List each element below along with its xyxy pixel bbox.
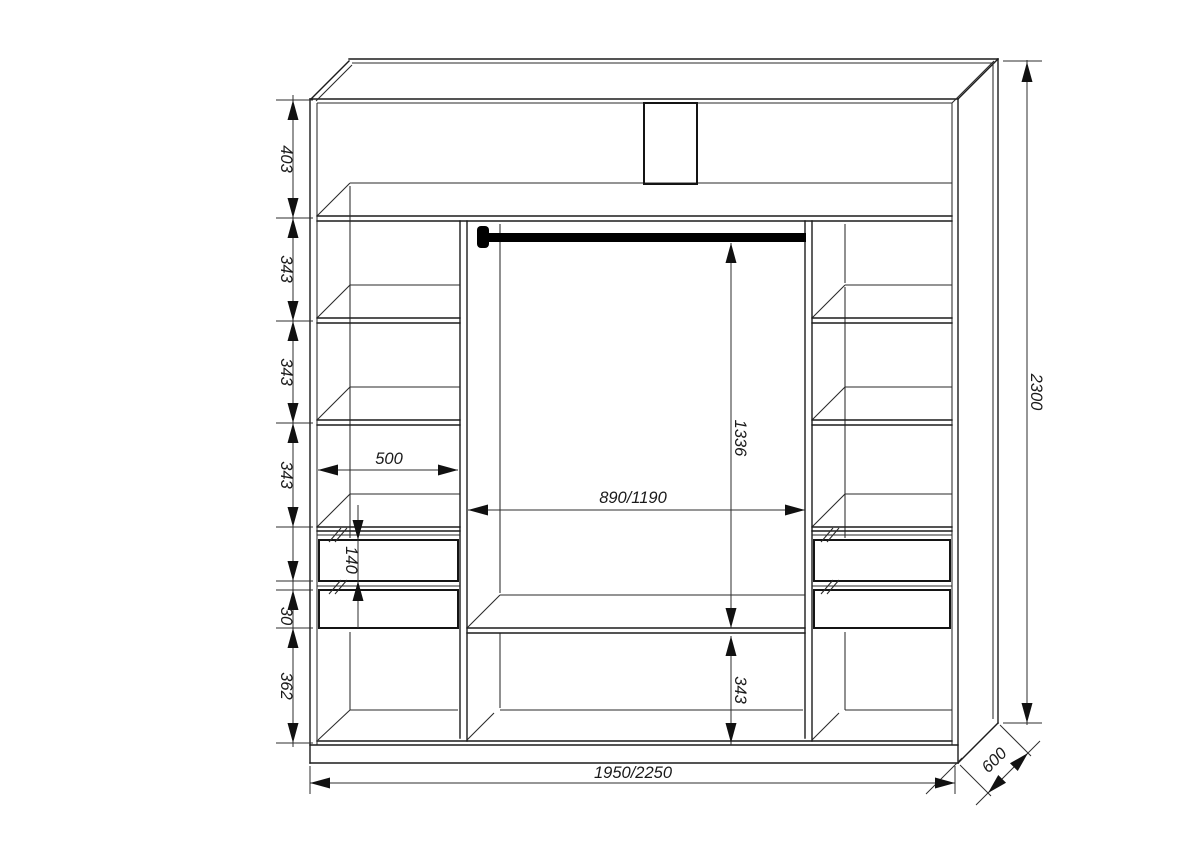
dimension-arrow <box>288 218 299 238</box>
left-drawers <box>317 528 460 628</box>
dim-label-overall-height: 2300 <box>1027 373 1045 412</box>
dim-label-shelf-1: 343 <box>277 255 295 283</box>
carcass-outline <box>310 59 998 763</box>
dimension-arrow <box>288 723 299 743</box>
left-column-shelves <box>317 285 460 531</box>
dim-label-left-width: 500 <box>375 450 403 468</box>
dimension-arrow <box>726 243 737 263</box>
dimension-arrow <box>288 301 299 321</box>
rod-bar <box>486 233 806 242</box>
top-divider-panel <box>644 103 697 184</box>
hanging-rod <box>477 226 806 248</box>
dimension-arrow <box>726 723 737 743</box>
dim-label-top-section: 403 <box>277 145 295 173</box>
dim-label-shelf-2: 343 <box>277 358 295 386</box>
dimension-arrow <box>353 520 364 540</box>
dim-label-overall-width: 1950/2250 <box>594 764 673 782</box>
dimension-arrow <box>785 505 805 516</box>
dimension-arrow <box>288 628 299 648</box>
dimension-arrow <box>310 778 330 789</box>
right-column-shelves <box>812 285 952 531</box>
left-drawer-2 <box>319 590 458 628</box>
dimension-arrow <box>288 561 299 581</box>
drawer-slide-hatch-marks <box>821 528 839 594</box>
dimension-arrow <box>726 608 737 628</box>
dim-label-center-width: 890/1190 <box>599 489 667 507</box>
dimension-arrow <box>288 403 299 423</box>
dimension-arrow <box>1022 62 1033 82</box>
dimension-arrow <box>1022 703 1033 723</box>
dim-label-rod-to-shelf: 1336 <box>731 420 749 458</box>
cabinet-structure <box>310 59 998 763</box>
right-drawer-1 <box>814 540 950 581</box>
dimension-arrow <box>318 465 338 476</box>
dimension-arrow <box>288 198 299 218</box>
dim-label-drawer-height: 140 <box>342 546 360 574</box>
dimension-arrow <box>935 778 955 789</box>
right-drawer-2 <box>814 590 950 628</box>
dimension-arrow <box>726 636 737 656</box>
dim-label-drawer-gap: 30 <box>277 607 295 626</box>
dimension-arrow <box>438 465 458 476</box>
top-shelf <box>317 183 952 221</box>
left-partition <box>460 221 500 741</box>
dimension-arrow <box>288 423 299 443</box>
drawing-canvas: 403 343 343 343 30 362 140 1336 343 2300… <box>0 0 1200 849</box>
dim-label-bottom-center: 343 <box>731 676 749 704</box>
dim-label-bottom-left: 362 <box>277 672 295 700</box>
dimension-arrow <box>468 505 488 516</box>
dimension-arrow <box>288 321 299 341</box>
right-partition <box>805 221 845 741</box>
wardrobe-technical-drawing: 403 343 343 343 30 362 140 1336 343 2300… <box>0 0 1200 849</box>
dim-label-depth: 600 <box>978 744 1011 777</box>
right-drawers <box>812 528 952 628</box>
dimension-annotations: 403 343 343 343 30 362 140 1336 343 2300… <box>276 60 1045 805</box>
dimension-arrow <box>288 100 299 120</box>
left-drawer-1 <box>319 540 458 581</box>
dimension-arrowheads <box>288 62 1033 793</box>
left-dimension-chain <box>276 95 313 747</box>
center-shelf <box>467 595 805 633</box>
dimension-arrow <box>288 507 299 527</box>
dim-label-shelf-3: 343 <box>277 461 295 489</box>
